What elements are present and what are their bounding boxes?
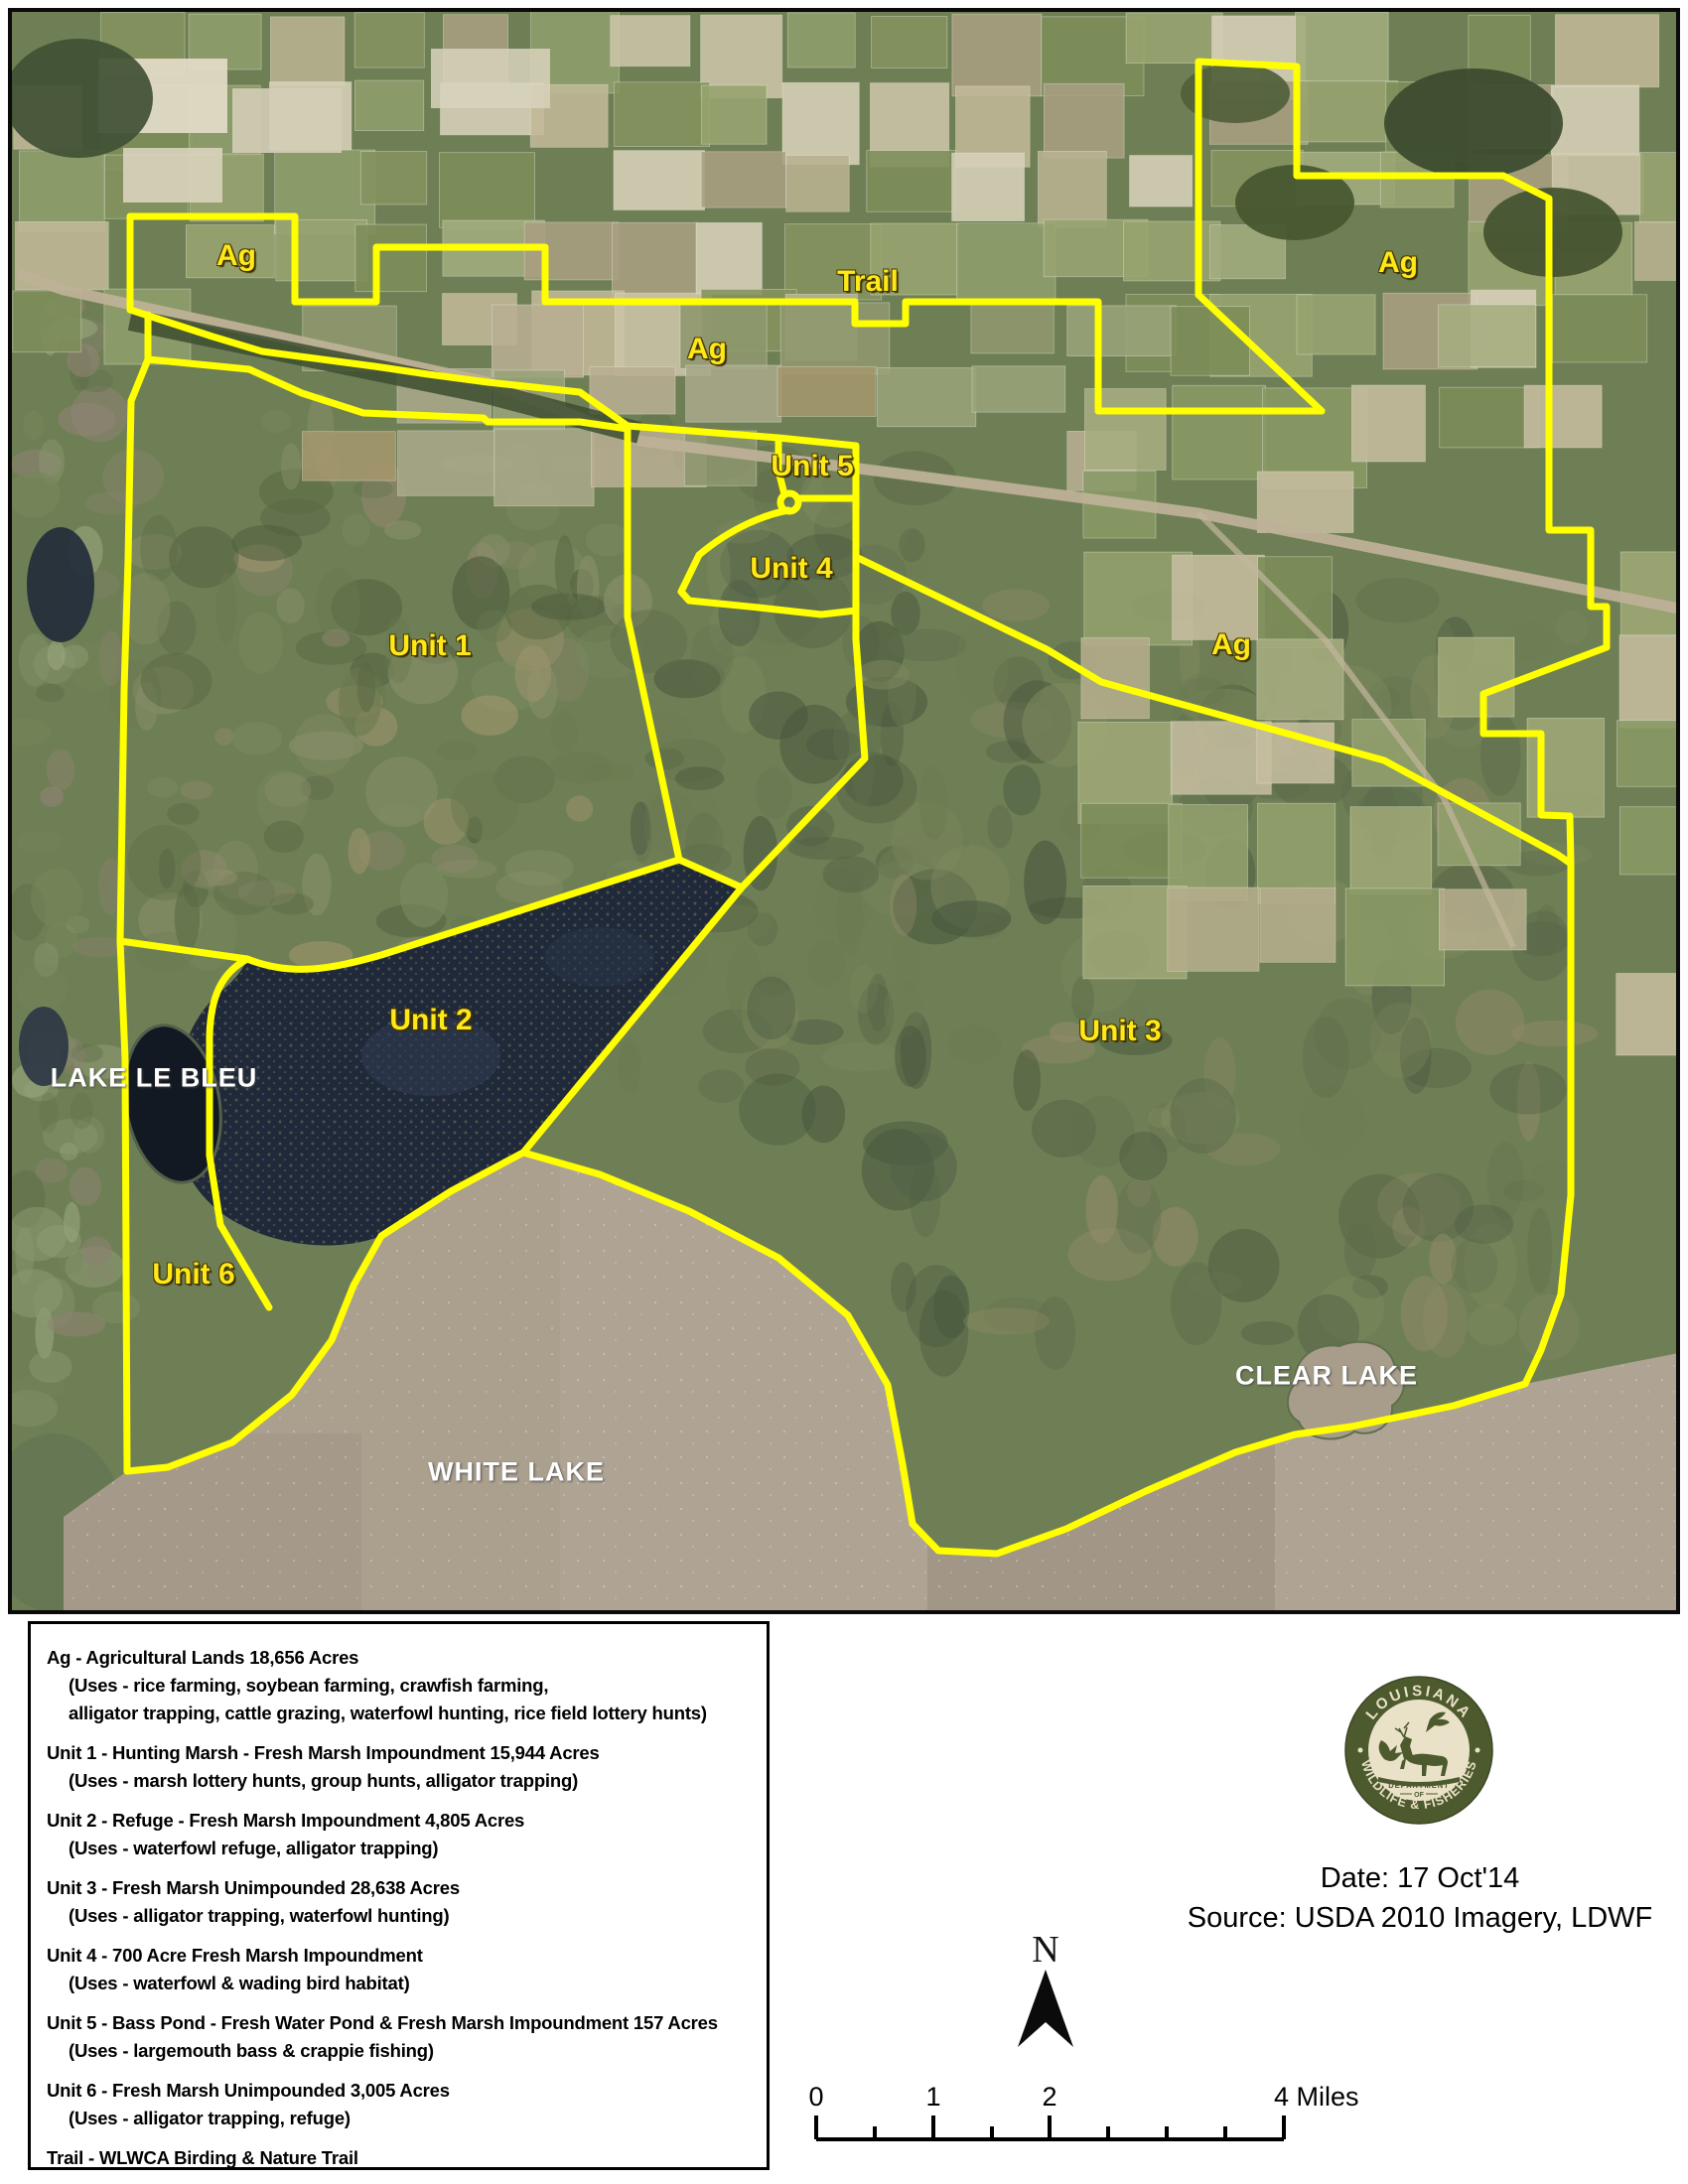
legend-entry-unit6: Unit 6 - Fresh Marsh Unimpounded 3,005 A… [47,2077,757,2132]
label-white-lake: WHITE LAKE [428,1457,605,1488]
legend-uses: (Uses - largemouth bass & crappie fishin… [47,2037,757,2065]
label-unit-1: Unit 1 [388,629,471,663]
label-lake-le-bleu: LAKE LE BLEU [51,1063,258,1094]
logo-dept-text: DEPARTMENT [1388,1781,1450,1790]
legend-uses: (Uses - marsh lottery hunts, group hunts… [47,1767,757,1795]
legend-title: Unit 6 - Fresh Marsh Unimpounded 3,005 A… [47,2077,757,2105]
legend-entry-ag: Ag - Agricultural Lands 18,656 Acres (Us… [47,1644,757,1727]
label-unit-2: Unit 2 [389,1004,472,1037]
legend-entry-unit3: Unit 3 - Fresh Marsh Unimpounded 28,638 … [47,1874,757,1930]
legend-title: Unit 3 - Fresh Marsh Unimpounded 28,638 … [47,1874,757,1902]
logo-dot-right [1476,1748,1480,1753]
label-ag-topleft: Ag [216,239,256,273]
scale-label-2: 2 [1042,2082,1056,2112]
scale-label-1: 1 [925,2082,940,2112]
north-arrow: N [996,1924,1095,2063]
legend-uses: (Uses - waterfowl & wading bird habitat) [47,1970,757,1997]
legend-uses: (Uses - rice farming, soybean farming, c… [47,1672,757,1700]
label-ag-right: Ag [1211,628,1251,662]
credit-block: Date: 17 Oct'14 Source: USDA 2010 Imager… [1142,1858,1688,1938]
legend-title: Trail - WLWCA Birding & Nature Trail [47,2144,757,2172]
scale-label-0: 0 [808,2082,823,2112]
legend-uses: (Uses - alligator trapping, refuge) [47,2105,757,2132]
legend-entry-trail: Trail - WLWCA Birding & Nature Trail [47,2144,757,2172]
aerial-imagery [12,12,1676,1610]
label-unit-3: Unit 3 [1078,1015,1161,1048]
legend-title: Unit 4 - 700 Acre Fresh Marsh Impoundmen… [47,1942,757,1970]
label-unit-4: Unit 4 [750,552,832,586]
map-area: Ag Ag Ag Ag Trail Unit 1 Unit 2 Unit 3 U… [8,8,1680,1614]
label-unit-6: Unit 6 [152,1258,234,1292]
north-letter: N [1032,1929,1058,1971]
legend-title: Ag - Agricultural Lands 18,656 Acres [47,1644,757,1672]
label-trail: Trail [837,265,899,299]
legend-entry-unit5: Unit 5 - Bass Pond - Fresh Water Pond & … [47,2009,757,2065]
logo-of-text: OF [1414,1792,1424,1799]
scale-bar-ticks [816,2116,1284,2139]
legend-entry-unit2: Unit 2 - Refuge - Fresh Marsh Impoundmen… [47,1807,757,1862]
credit-source: Source: USDA 2010 Imagery, LDWF [1142,1898,1688,1938]
credit-date: Date: 17 Oct'14 [1142,1858,1688,1898]
legend-entry-unit1: Unit 1 - Hunting Marsh - Fresh Marsh Imp… [47,1739,757,1795]
legend-uses: (Uses - alligator trapping, waterfowl hu… [47,1902,757,1930]
legend-uses: (Uses - waterfowl refuge, alligator trap… [47,1835,757,1862]
north-arrow-icon [1018,1970,1073,2047]
label-ag-central: Ag [687,333,727,366]
legend-box: Ag - Agricultural Lands 18,656 Acres (Us… [28,1621,770,2170]
label-ag-topright: Ag [1378,246,1418,280]
legend-uses: alligator trapping, cattle grazing, wate… [47,1700,757,1727]
scale-label-miles: 4 Miles [1274,2082,1359,2112]
legend-title: Unit 5 - Bass Pond - Fresh Water Pond & … [47,2009,757,2037]
ldwf-logo: LOUISIANA WILDLIFE & FISHERIES DEPARTMEN… [1342,1674,1495,1827]
label-unit-5: Unit 5 [771,450,853,483]
legend-entry-unit4: Unit 4 - 700 Acre Fresh Marsh Impoundmen… [47,1942,757,1997]
legend-title: Unit 2 - Refuge - Fresh Marsh Impoundmen… [47,1807,757,1835]
label-clear-lake: CLEAR LAKE [1235,1361,1418,1392]
legend-title: Unit 1 - Hunting Marsh - Fresh Marsh Imp… [47,1739,757,1767]
scale-bar: 0 1 2 4 Miles [789,2070,1405,2159]
logo-dot-left [1358,1748,1363,1753]
